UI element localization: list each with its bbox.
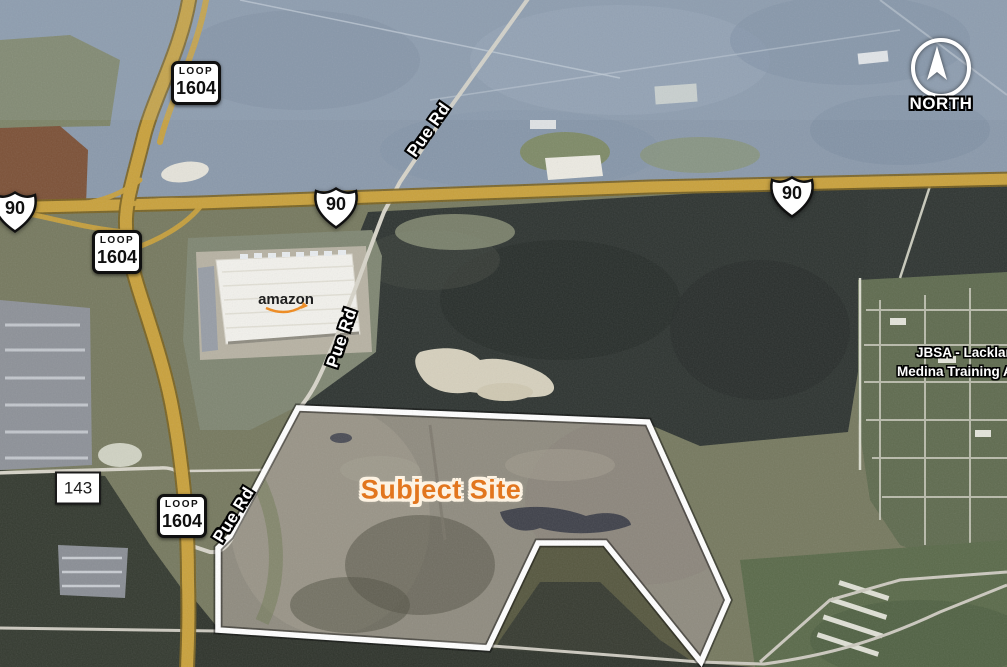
subject-site-label: Subject Site	[361, 475, 522, 506]
shield-number: 1604	[160, 510, 204, 535]
us-route-shield-90: 90	[768, 175, 816, 219]
shield-number: 90	[768, 183, 816, 204]
us-route-shield-90: 90	[0, 190, 39, 234]
route-shield-143: 143	[55, 472, 101, 505]
route-shield-loop-1604: LOOP 1604	[92, 230, 142, 274]
route-shield-loop-1604: LOOP 1604	[171, 61, 221, 105]
aerial-basemap: amazon	[0, 0, 1007, 667]
shield-prefix: LOOP	[174, 64, 218, 77]
shield-number: 90	[312, 194, 360, 215]
north-label: NORTH	[910, 94, 973, 114]
shield-number: 1604	[174, 77, 218, 102]
shield-number: 143	[64, 478, 92, 498]
route-shield-loop-1604: LOOP 1604	[157, 494, 207, 538]
aerial-map: amazon	[0, 0, 1007, 667]
jbsa-medina-label-line2: Medina Training A	[897, 363, 1007, 381]
shield-number: 1604	[95, 246, 139, 271]
shield-prefix: LOOP	[160, 497, 204, 510]
shield-prefix: LOOP	[95, 233, 139, 246]
north-arrow-icon	[911, 38, 971, 98]
jbsa-medina-label-line1: JBSA - Lackland	[916, 344, 1007, 362]
us-route-shield-90: 90	[312, 186, 360, 230]
shield-number: 90	[0, 198, 39, 219]
